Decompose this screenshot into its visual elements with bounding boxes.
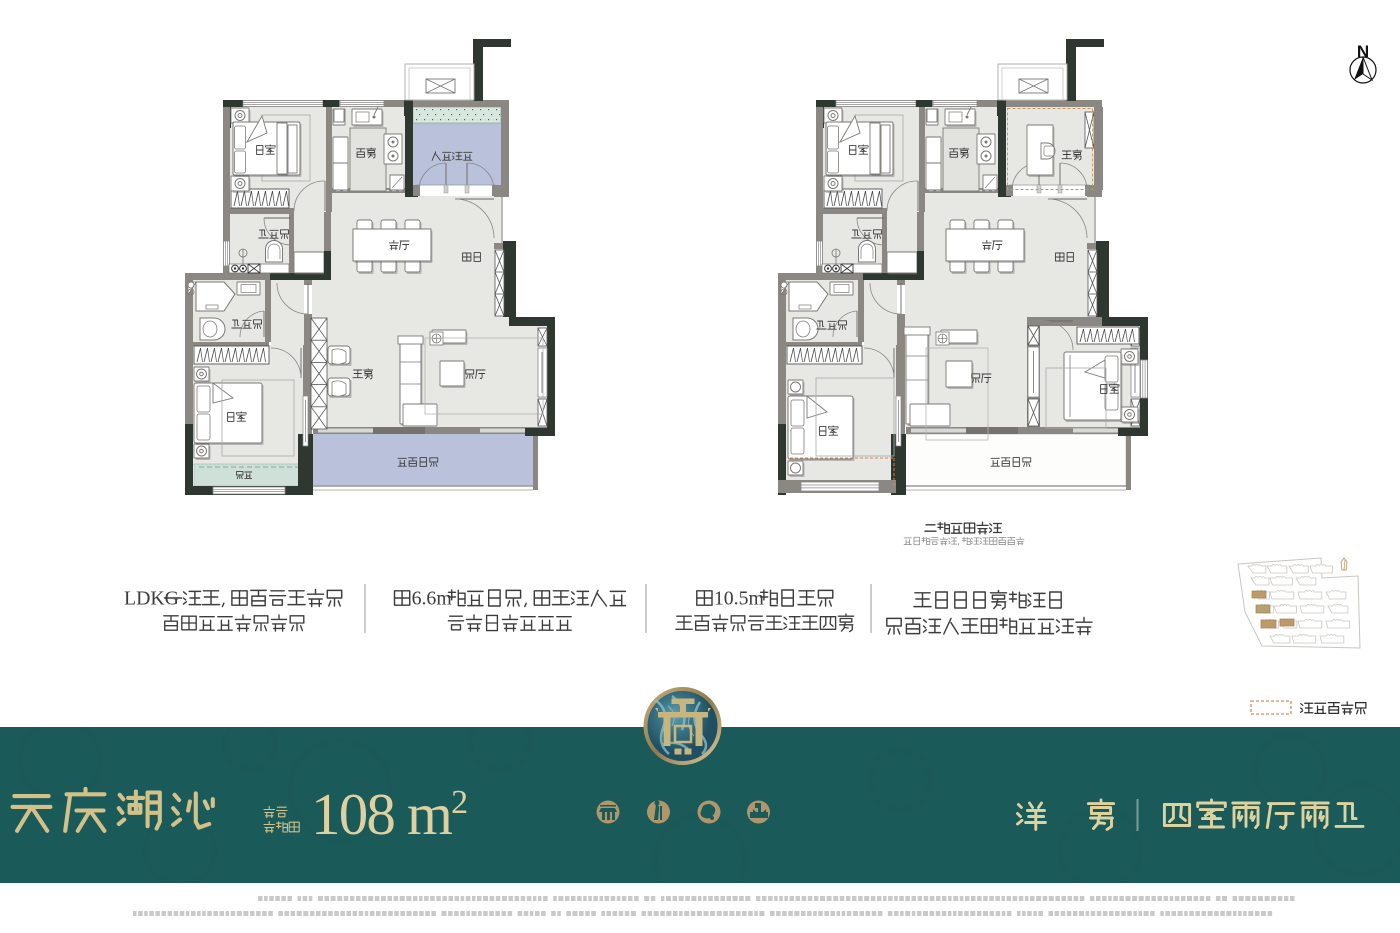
svg-text:6.6m: 6.6m: [412, 588, 453, 610]
svg-text:10.5m: 10.5m: [714, 588, 765, 610]
svg-text:108 m2: 108 m2: [311, 781, 467, 847]
svg-text:LDKG: LDKG: [124, 588, 179, 610]
